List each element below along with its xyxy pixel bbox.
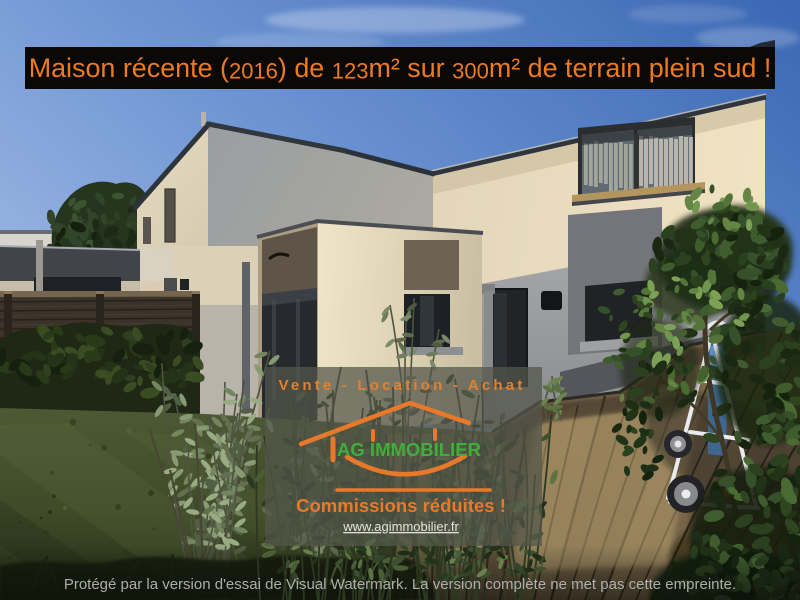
svg-text:Commissions réduites !: Commissions réduites ! (296, 495, 506, 516)
svg-text:www.agimmobilier.fr: www.agimmobilier.fr (342, 519, 459, 534)
svg-text:Vente - Location - Achat: Vente - Location - Achat (278, 377, 525, 394)
svg-text:Protégé par la version d'essai: Protégé par la version d'essai de Visual… (64, 576, 736, 593)
svg-text:Maison récente (2016) de 123m²: Maison récente (2016) de 123m² sur 300m²… (29, 53, 772, 84)
svg-text:AG IMMOBILIER: AG IMMOBILIER (337, 439, 481, 460)
